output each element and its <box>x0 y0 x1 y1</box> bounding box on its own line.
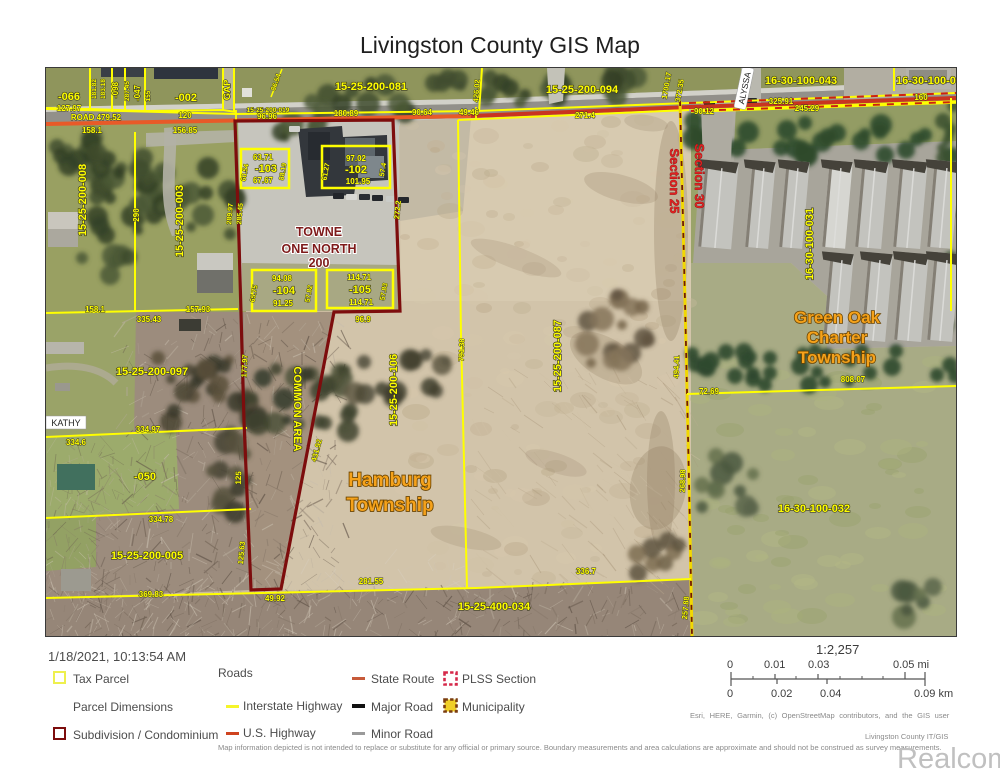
svg-text:15-25-400-034: 15-25-400-034 <box>458 601 531 613</box>
svg-text:334.6: 334.6 <box>66 438 87 447</box>
svg-text:15-25-200-008: 15-25-200-008 <box>77 164 89 236</box>
svg-text:268.98: 268.98 <box>678 469 688 492</box>
svg-text:49.92: 49.92 <box>265 594 286 603</box>
svg-text:177.97: 177.97 <box>239 354 249 377</box>
svg-text:120: 120 <box>178 111 192 120</box>
svg-text:325.91: 325.91 <box>769 97 794 106</box>
svg-text:Township: Township <box>346 495 433 516</box>
svg-text:63.71: 63.71 <box>253 153 274 162</box>
svg-text:Hamburg: Hamburg <box>348 470 431 491</box>
svg-text:426.02: 426.02 <box>471 79 482 103</box>
svg-text:67.67: 67.67 <box>253 176 274 185</box>
svg-text:334.97: 334.97 <box>136 425 161 434</box>
svg-text:COMMON AREA: COMMON AREA <box>291 366 303 451</box>
svg-text:KATHY: KATHY <box>51 418 80 428</box>
svg-text:-102: -102 <box>345 164 367 176</box>
svg-text:Section 30: Section 30 <box>692 143 707 208</box>
svg-text:335.43: 335.43 <box>137 315 162 324</box>
svg-text:336.7: 336.7 <box>576 567 597 576</box>
svg-text:180.89: 180.89 <box>334 109 359 118</box>
svg-text:91.25: 91.25 <box>273 299 294 308</box>
svg-text:808.07: 808.07 <box>841 375 866 384</box>
svg-text:TOWNE: TOWNE <box>296 225 342 239</box>
svg-text:157.93: 157.93 <box>186 305 211 314</box>
svg-text:334.78: 334.78 <box>149 515 174 524</box>
svg-text:16-30-100-031: 16-30-100-031 <box>804 208 816 280</box>
svg-text:Section 25: Section 25 <box>667 148 682 213</box>
svg-text:16-30-100-00: 16-30-100-00 <box>896 75 956 87</box>
svg-text:156.85: 156.85 <box>173 126 198 135</box>
svg-text:-105: -105 <box>349 284 371 296</box>
svg-text:96.96: 96.96 <box>257 112 278 121</box>
svg-text:245.29: 245.29 <box>795 104 820 113</box>
svg-text:49.46: 49.46 <box>459 108 480 117</box>
svg-text:369.83: 369.83 <box>139 590 164 599</box>
svg-text:15-25-200-005: 15-25-200-005 <box>111 550 183 562</box>
svg-text:158.1: 158.1 <box>82 126 103 135</box>
svg-text:ONE NORTH: ONE NORTH <box>282 242 357 256</box>
svg-text:97.02: 97.02 <box>346 154 367 163</box>
svg-text:114.71: 114.71 <box>347 273 372 282</box>
svg-text:-047: -047 <box>133 84 142 101</box>
svg-text:791.38: 791.38 <box>457 338 467 361</box>
svg-text:127.97: 127.97 <box>57 104 82 113</box>
svg-text:15-25-200-081: 15-25-200-081 <box>335 81 407 93</box>
svg-text:494.41: 494.41 <box>672 355 682 378</box>
svg-text:125: 125 <box>234 471 243 485</box>
svg-text:183.18: 183.18 <box>100 79 107 99</box>
svg-text:290: 290 <box>132 208 141 222</box>
svg-text:90.64: 90.64 <box>412 108 433 117</box>
svg-text:-104: -104 <box>273 285 296 297</box>
svg-text:271.4: 271.4 <box>575 111 596 120</box>
svg-text:Green Oak: Green Oak <box>794 308 881 327</box>
svg-text:15-25-200-106: 15-25-200-106 <box>388 354 400 426</box>
svg-text:-103: -103 <box>255 163 277 175</box>
svg-text:155: 155 <box>145 90 152 101</box>
svg-text:16-30-100-043: 16-30-100-043 <box>765 75 837 87</box>
svg-text:160: 160 <box>914 93 928 102</box>
svg-text:94.08: 94.08 <box>272 274 293 283</box>
svg-text:158.1: 158.1 <box>85 305 106 314</box>
svg-text:200: 200 <box>309 256 330 270</box>
svg-text:-050: -050 <box>134 471 156 483</box>
svg-text:281.55: 281.55 <box>359 577 384 586</box>
svg-text:-098: -098 <box>111 81 120 98</box>
svg-text:Charter: Charter <box>807 328 868 347</box>
svg-text:114.71: 114.71 <box>349 298 374 307</box>
svg-text:72.69: 72.69 <box>699 387 720 396</box>
svg-text:287.45: 287.45 <box>124 81 131 101</box>
svg-text:90.12: 90.12 <box>694 107 715 116</box>
svg-text:-002: -002 <box>175 92 197 104</box>
svg-text:16-30-100-032: 16-30-100-032 <box>778 503 850 515</box>
svg-text:96.9: 96.9 <box>355 315 371 324</box>
svg-text:15-25-200-097: 15-25-200-097 <box>116 366 188 378</box>
svg-text:ROAD 479.52: ROAD 479.52 <box>71 113 122 122</box>
svg-text:Township: Township <box>798 348 876 367</box>
svg-text:272.2: 272.2 <box>392 200 403 219</box>
svg-text:181.82: 181.82 <box>91 79 98 99</box>
svg-text:15-25-200-094: 15-25-200-094 <box>546 84 619 96</box>
svg-text:15-25-200-087: 15-25-200-087 <box>552 320 564 392</box>
svg-text:101.95: 101.95 <box>346 177 371 186</box>
svg-text:15-25-200-003: 15-25-200-003 <box>174 185 186 257</box>
svg-text:GAP: GAP <box>222 79 233 100</box>
svg-text:-066: -066 <box>58 91 80 103</box>
